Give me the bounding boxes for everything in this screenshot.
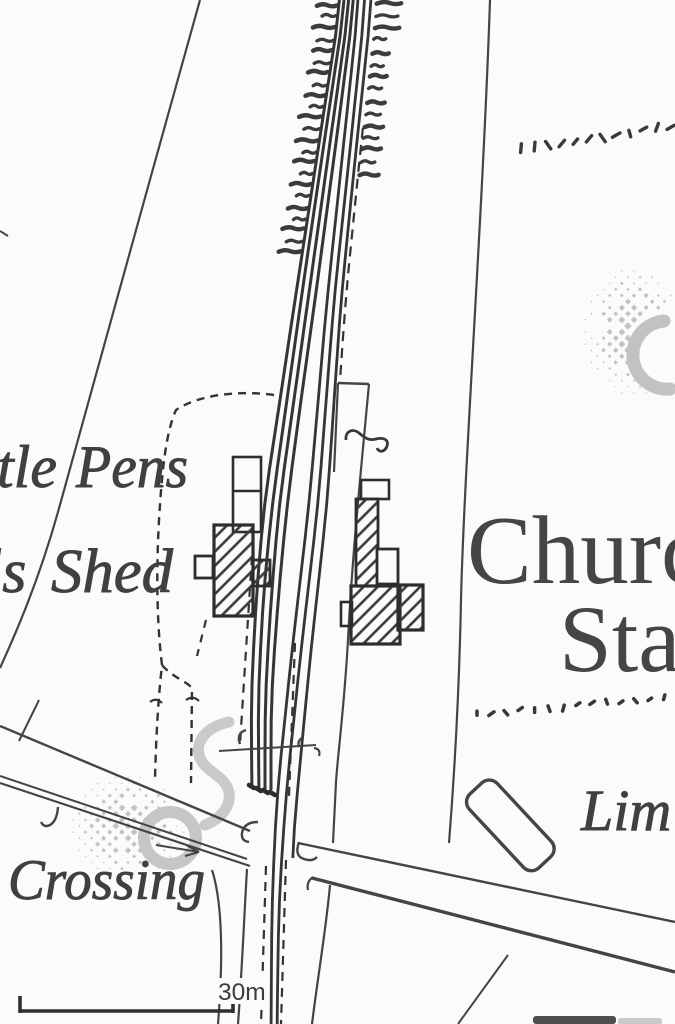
- svg-text:Shed: Shed: [51, 538, 174, 606]
- svg-text:30m: 30m: [218, 979, 266, 1006]
- svg-text:Lim: Lim: [580, 778, 671, 843]
- svg-text:tle: tle: [0, 434, 57, 500]
- svg-text:Crossing: Crossing: [8, 849, 205, 912]
- svg-text:Pens: Pens: [75, 434, 188, 500]
- svg-text:Sta: Sta: [559, 586, 675, 692]
- svg-text:ls: ls: [0, 538, 26, 606]
